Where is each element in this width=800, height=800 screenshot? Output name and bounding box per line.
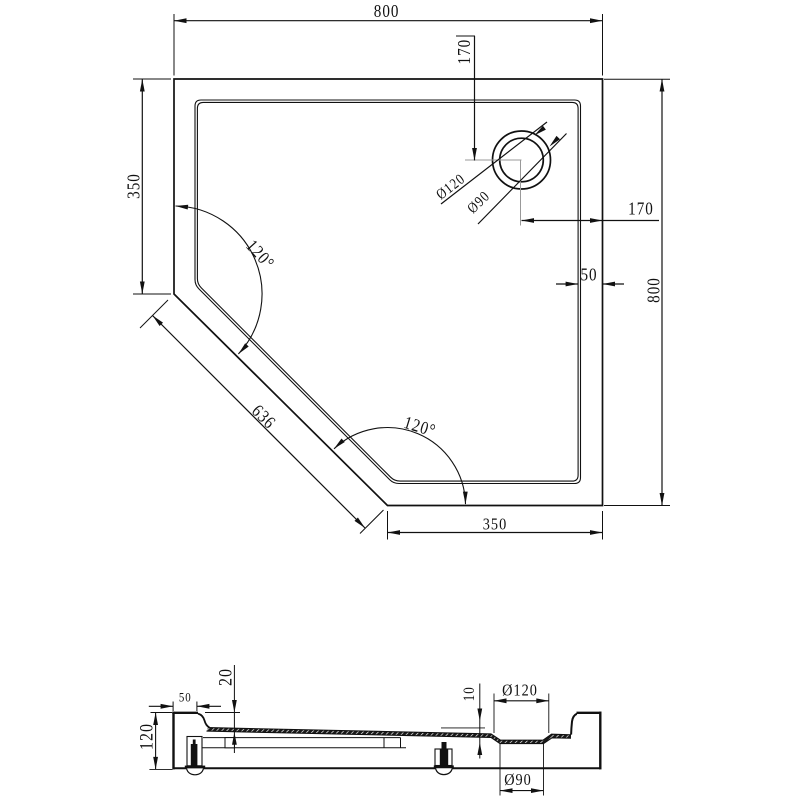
svg-text:800: 800	[374, 1, 400, 22]
svg-text:170: 170	[628, 198, 654, 219]
svg-text:800: 800	[643, 277, 664, 303]
svg-text:Ø90: Ø90	[504, 771, 532, 789]
svg-text:20: 20	[214, 668, 236, 686]
svg-text:120: 120	[135, 723, 157, 750]
svg-text:50: 50	[580, 264, 597, 285]
svg-text:10: 10	[461, 686, 478, 701]
svg-text:50: 50	[179, 690, 192, 705]
svg-text:170: 170	[454, 39, 475, 65]
svg-text:350: 350	[483, 516, 507, 534]
svg-text:Ø120: Ø120	[502, 682, 538, 700]
svg-text:350: 350	[123, 173, 144, 199]
